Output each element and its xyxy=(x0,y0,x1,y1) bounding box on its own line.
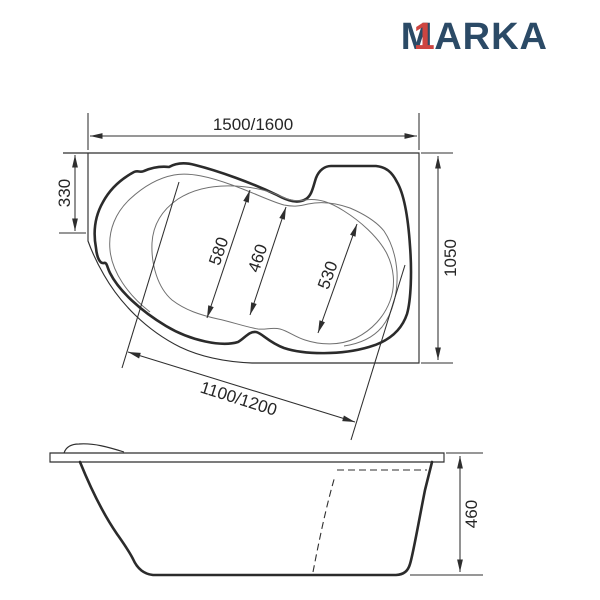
technical-drawing-page: M1ARKA 1500/1600 330 xyxy=(0,0,600,600)
dim-label-inner-middle: 460 xyxy=(244,242,271,275)
ext-line xyxy=(351,265,405,440)
dim-label-inner-left: 580 xyxy=(205,235,232,268)
side-rim-strip xyxy=(50,453,444,462)
bathtub-dimension-drawing: 1500/1600 330 1050 1100/1200 580 460 53 xyxy=(0,0,600,600)
dim-label-overall-depth: 1050 xyxy=(441,239,460,277)
dim-label-left-offset: 330 xyxy=(55,179,74,207)
side-hidden-seat-edge xyxy=(313,476,335,572)
side-view: 460 xyxy=(50,444,483,575)
logo-numeral-one: 1 xyxy=(414,18,436,56)
dim-label-front-width: 1100/1200 xyxy=(198,378,279,420)
dim-label-overall-width: 1500/1600 xyxy=(213,115,293,134)
logo-letters-arka: ARKA xyxy=(434,16,548,58)
brand-logo: M1ARKA xyxy=(401,18,548,56)
tub-basin-outline xyxy=(152,186,394,344)
dim-label-inner-right: 530 xyxy=(314,259,342,292)
dim-label-side-height: 460 xyxy=(462,500,481,528)
side-body-outline xyxy=(80,462,432,575)
ext-line xyxy=(122,182,179,368)
top-view: 1500/1600 330 1050 1100/1200 580 460 53 xyxy=(55,113,460,440)
side-headrest-bump xyxy=(64,444,124,453)
